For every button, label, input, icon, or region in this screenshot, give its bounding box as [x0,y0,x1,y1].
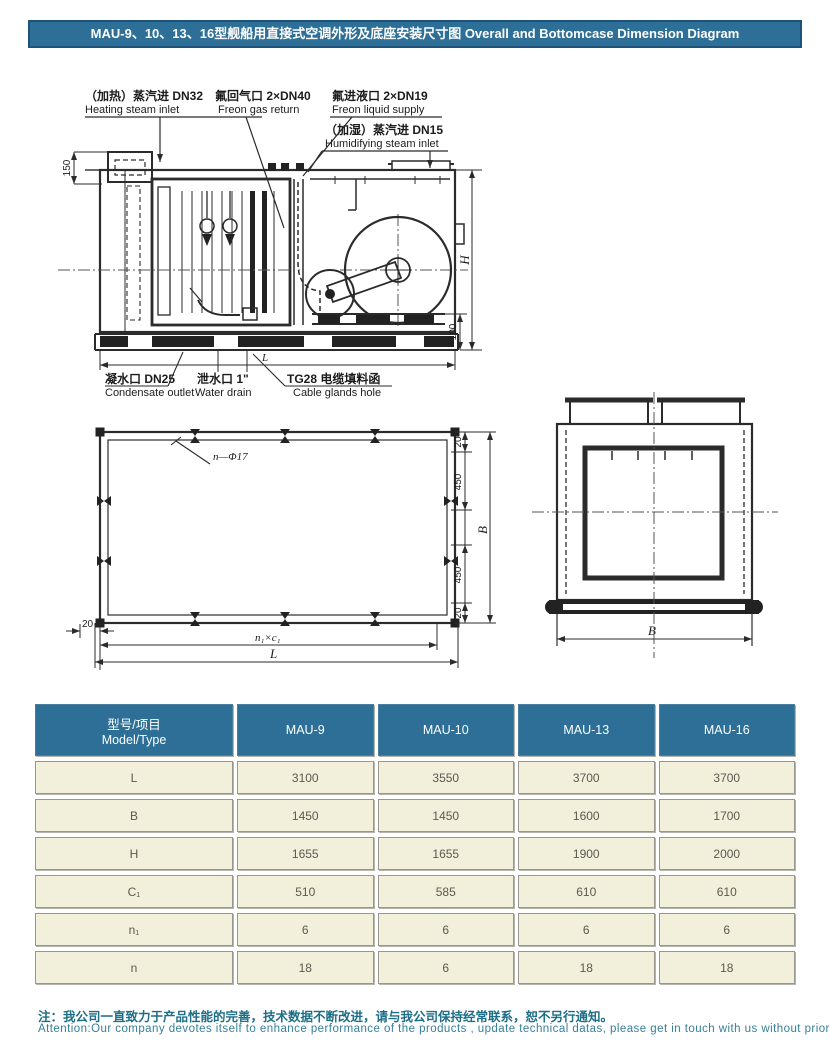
table-cell: 1655 [237,837,374,870]
table-cell: 610 [659,875,796,908]
table-cell: 3700 [659,761,796,794]
table-cell: 585 [378,875,515,908]
table-cell: 610 [518,875,655,908]
dim-H: H [457,255,472,266]
bolt-holes-label: n—Φ17 [213,451,248,463]
plan-dim-n1c1: n₁×c₁ [255,632,281,644]
freon-liquid-label-en: Freon liquid supply [332,104,425,116]
dimension-diagram: （加热）蒸汽进 DN32 Heating steam inlet 氟回气口 2×… [0,58,830,698]
row-label-H: H [35,837,233,870]
table-cell: 1600 [518,799,655,832]
table-cell: 1450 [378,799,515,832]
table-header-model-cn: 型号/项目 [107,714,160,733]
row-label-n1: n₁ [35,913,233,946]
table-cell: 510 [237,875,374,908]
table-cell: 6 [378,913,515,946]
table-cell: 1700 [659,799,796,832]
table-cell: 6 [518,913,655,946]
base-plan-view: n—Φ17 20 450 450 20 B [66,428,496,671]
row-label-C1: C₁ [35,875,233,908]
dim-L-side: L [261,352,268,364]
heating-steam-label-en: Heating steam inlet [85,104,179,116]
freon-liquid-label-cn: 氟进液口 2×DN19 [332,88,428,103]
table-cell: 3100 [237,761,374,794]
humidify-steam-label-cn: （加湿）蒸汽进 DN15 [325,122,443,137]
side-elevation-view: （加热）蒸汽进 DN32 Heating steam inlet 氟回气口 2×… [58,88,482,399]
table-header-model-en: Model/Type [102,733,167,747]
table-header-mau13: MAU-13 [518,704,655,756]
table-cell: 1900 [518,837,655,870]
table-header-mau16: MAU-16 [659,704,796,756]
dim-100: 100 [448,323,459,340]
cable-gland-label-en: Cable glands hole [293,387,381,399]
table-cell: 2000 [659,837,796,870]
table-cell: 1655 [378,837,515,870]
table-cell: 6 [378,951,515,984]
table-cell: 18 [237,951,374,984]
plan-dim-20-bottom: 20 [453,607,464,619]
plan-dim-450-top: 450 [453,473,464,490]
row-label-n: n [35,951,233,984]
page: MAU-9、10、13、16型舰船用直接式空调外形及底座安装尺寸图 Overal… [0,0,830,1050]
row-label-L: L [35,761,233,794]
row-label-B: B [35,799,233,832]
dim-150: 150 [62,159,73,176]
table-cell: 18 [659,951,796,984]
table-header-mau9: MAU-9 [237,704,374,756]
plan-dim-20-left: 20 [82,619,94,630]
table-cell: 1450 [237,799,374,832]
condensate-label-en: Condensate outlet [105,387,194,399]
cable-gland-label-cn: TG28 电缆填料函 [287,371,380,386]
end-view: B [532,392,778,658]
plan-dim-B: B [475,526,490,534]
freon-gas-label-en: Freon gas return [218,104,299,116]
table-cell: 3700 [518,761,655,794]
table-cell: 6 [659,913,796,946]
table-header-mau10: MAU-10 [378,704,515,756]
condensate-label-cn: 凝水口 DN25 [105,371,175,386]
page-title: MAU-9、10、13、16型舰船用直接式空调外形及底座安装尺寸图 Overal… [30,22,800,46]
table-header-model: 型号/项目 Model/Type [35,704,233,756]
plan-dim-L: L [269,646,277,661]
footnote-en: Attention:Our company devotes itself to … [38,1023,822,1035]
plan-dim-450-bottom: 450 [453,566,464,583]
end-dim-B: B [648,623,656,638]
table-cell: 3550 [378,761,515,794]
spec-table: 型号/项目 Model/Type MAU-9 MAU-10 MAU-13 MAU… [35,704,795,984]
drain-label-en: Water drain [195,387,251,399]
table-cell: 18 [518,951,655,984]
plan-dim-20-top: 20 [453,436,464,448]
heating-steam-label-cn: （加热）蒸汽进 DN32 [85,88,203,103]
table-cell: 6 [237,913,374,946]
humidify-steam-label-en: Humidifying steam inlet [325,138,439,150]
drain-label-cn: 泄水口 1" [197,371,249,386]
freon-gas-label-cn: 氟回气口 2×DN40 [215,88,311,103]
